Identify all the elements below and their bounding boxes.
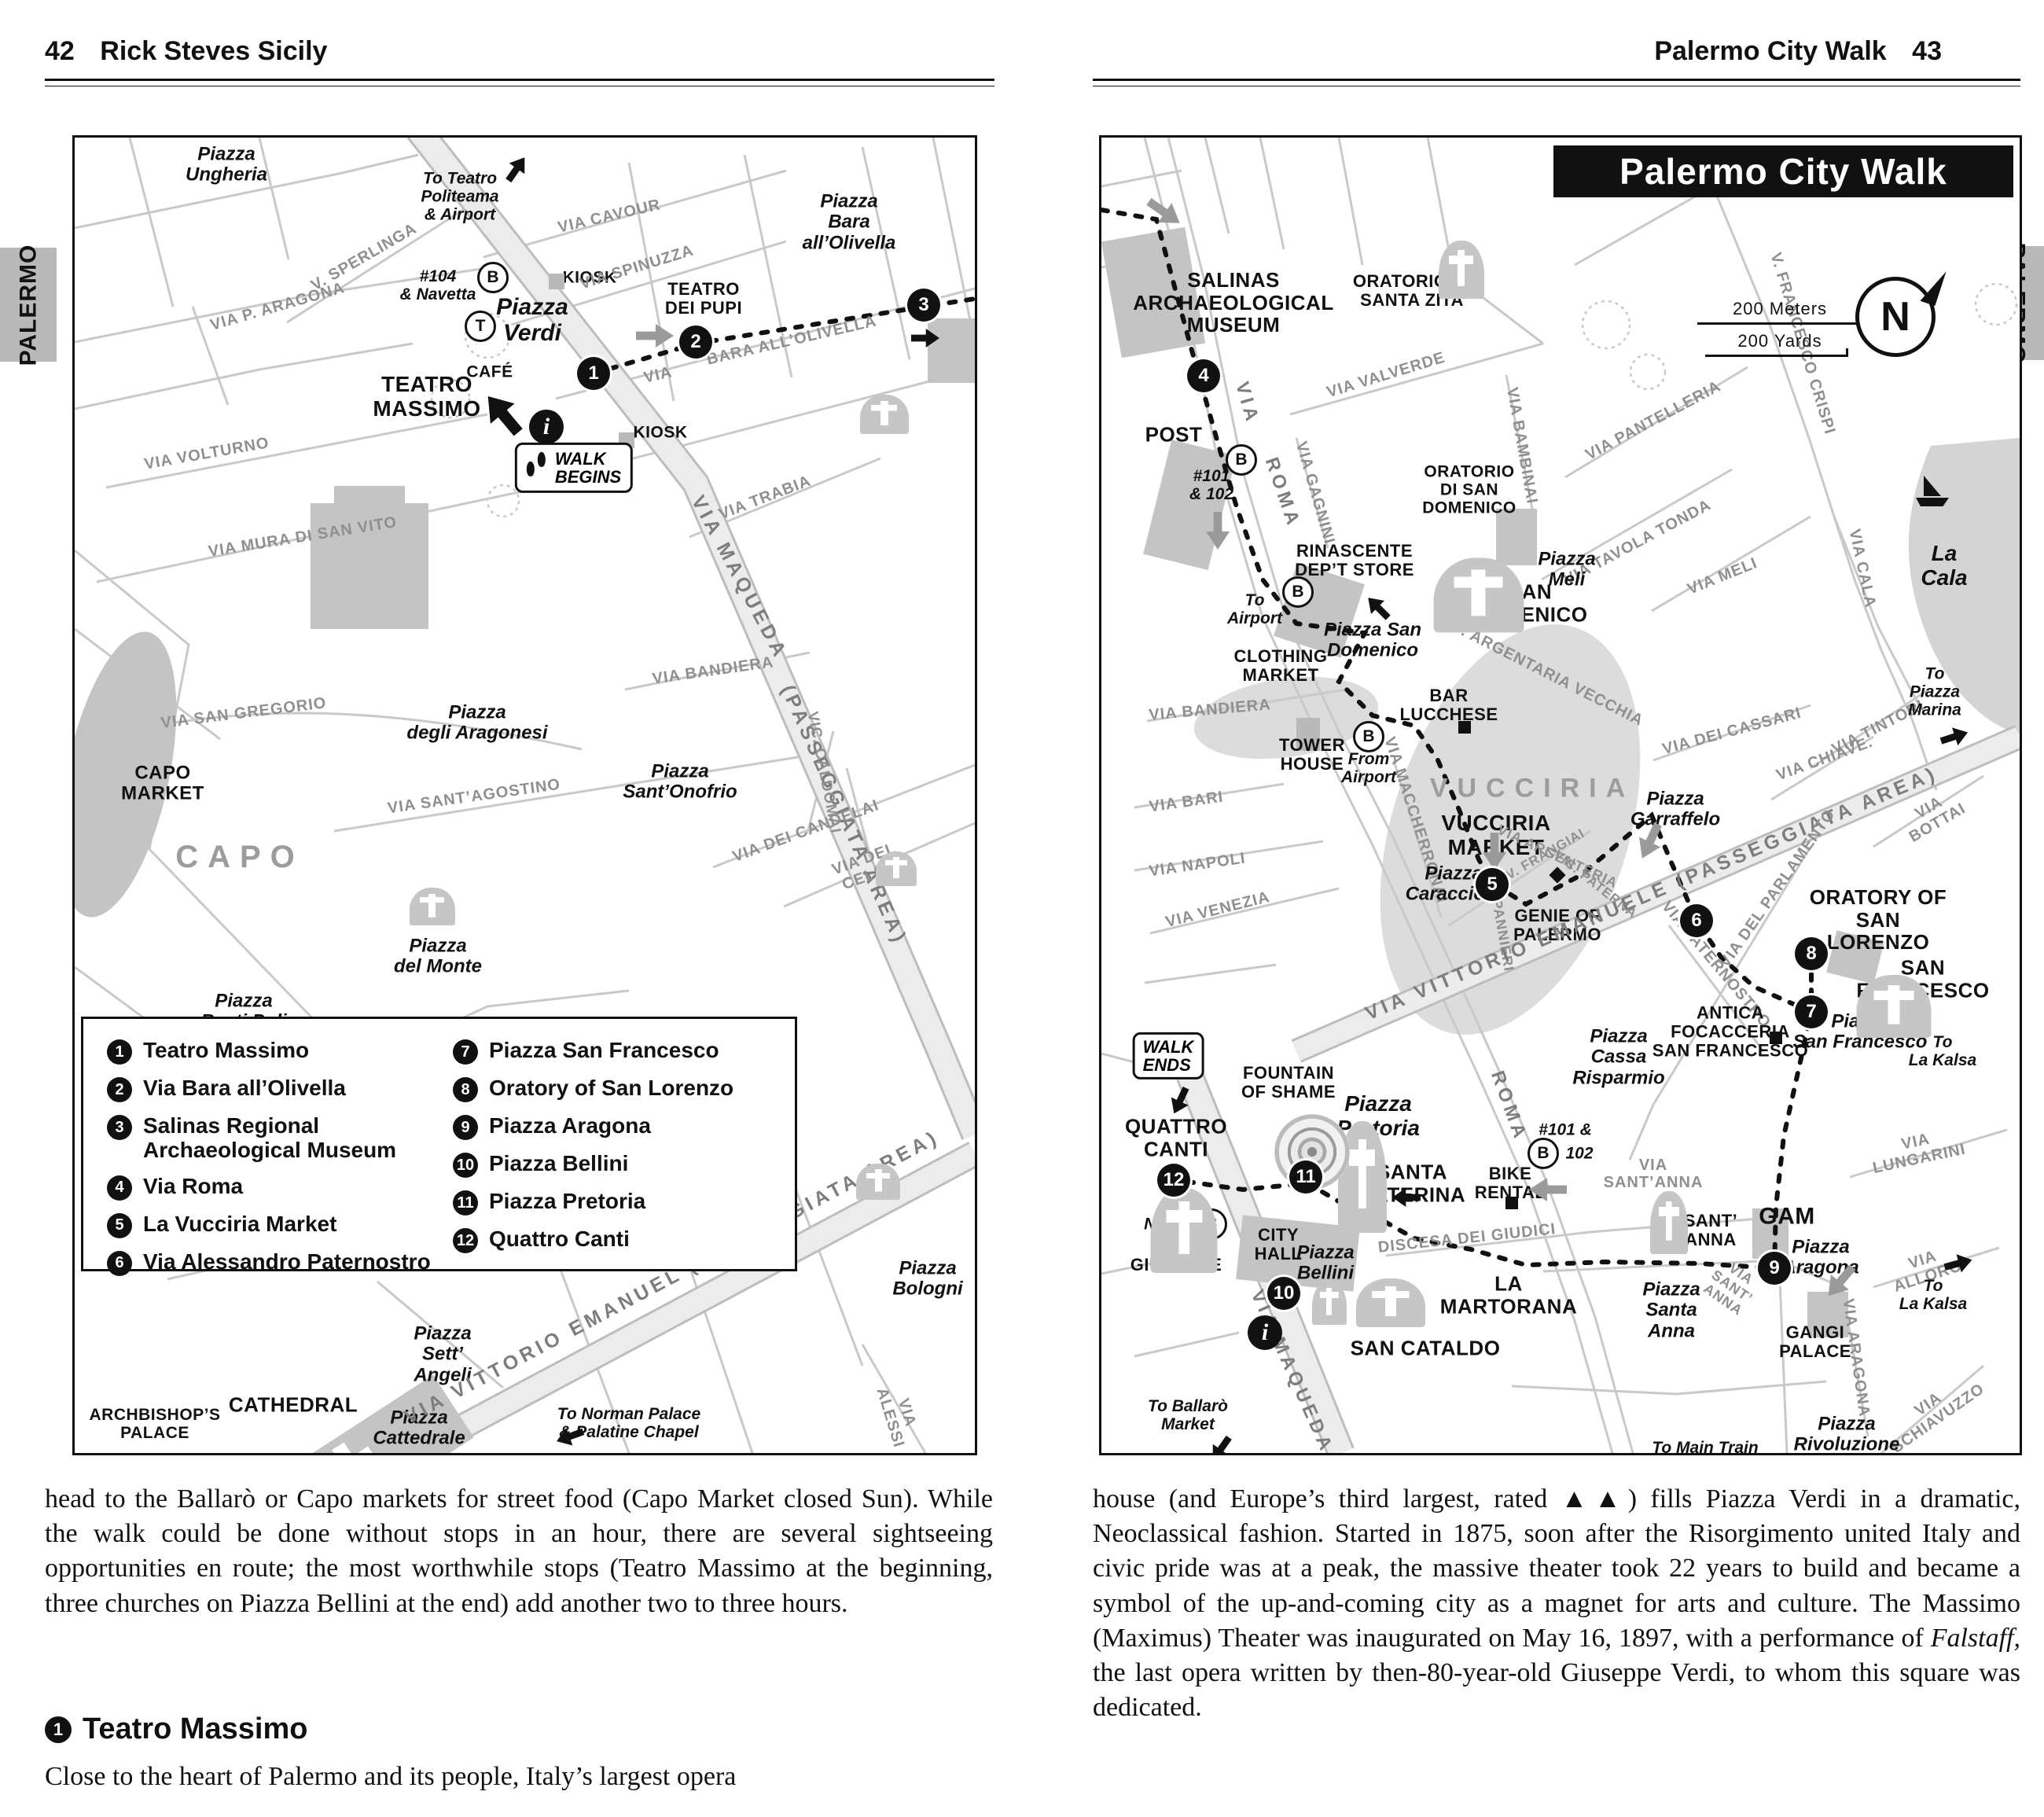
map-label: Piazza degli Aragonesi [406,703,547,745]
right-running-head: Palermo City Walk 43 [1654,36,1942,67]
church-icon [1312,1281,1347,1325]
overview-map[interactable]: Piazza UngheriaTo Teatro Politeama & Air… [72,135,977,1455]
map-label: QUATTRO CANTI [1125,1115,1227,1160]
page-number-right: 43 [1912,36,1942,66]
route-stop-2: 2 [679,326,712,359]
map-label: To Airport [1227,591,1282,627]
map-label: ANTICA FOCACCERIA SAN FRANCESCO [1652,1004,1808,1061]
church-icon [1434,558,1524,633]
heading-text: Teatro Massimo [83,1712,307,1746]
map-label: La Cala [1921,542,1967,590]
church-icon [1650,1191,1688,1254]
map-label: VUCCIRIA [1430,774,1634,803]
left-running-head: 42 Rick Steves Sicily [45,36,327,67]
chapter-title: Palermo City Walk [1654,36,1886,66]
kiosk-icon [549,274,564,289]
map-label: Piazza Cassa Risparmio [1572,1026,1664,1088]
boat-icon [1916,476,1950,510]
bike-rental-marker [1505,1197,1518,1209]
side-tab-left-label: PALERMO [15,244,42,366]
walk-begins-sign: WALK BEGINS [515,443,633,493]
route-stop-8: 8 [1795,937,1828,970]
map-label: Piazza Sant’Onofrio [623,762,737,804]
church-icon [1356,1278,1425,1327]
legend-item[interactable]: 8Oratory of San Lorenzo [453,1076,733,1102]
church-icon [1151,1188,1218,1273]
page-number-left: 42 [45,36,75,66]
map-label: To Ballarò Market [1148,1397,1228,1433]
walk-ends-sign: WALK ENDS [1133,1032,1204,1080]
left-page-paragraph: head to the Ballarò or Capo markets for … [45,1482,993,1621]
map-label: SANT’ ANNA [1684,1212,1738,1249]
church-icon [856,1164,900,1200]
right-page-paragraph: house (and Europe’s third largest, rated… [1093,1482,2020,1725]
map-label: Piazza San Domenico [1324,620,1421,662]
stop-number-icon: 2 [107,1077,132,1102]
compass-north-letter: N [1880,293,1910,340]
map-label: CATHEDRAL [229,1394,358,1417]
left-page-line: Close to the heart of Palermo and its pe… [45,1760,993,1794]
stop-number-icon: 7 [453,1039,478,1065]
book-title: Rick Steves Sicily [100,36,327,66]
scale-meters-line [1697,322,1858,325]
city-walk-map[interactable]: Palermo City Walk N 200 Meters 200 Yards… [1099,135,2022,1455]
map-label: To Piazza Marina [1908,664,1961,719]
stop-number-icon: 6 [107,1251,132,1276]
stop-number-icon: 9 [453,1115,478,1140]
map-title-text: Palermo City Walk [1619,150,1947,193]
map-label: CAPO [175,840,304,874]
map-label: GANGI PALACE [1779,1323,1851,1361]
legend-label: Salinas Regional Archaeological Museum [143,1113,396,1163]
legend-label: Via Alessandro Paternostro [143,1249,431,1274]
north-compass-icon: N [1855,277,1936,357]
legend-label: Piazza San Francesco [489,1038,719,1062]
bus-badge: B [1527,1138,1559,1169]
stop-number-icon: 11 [453,1190,478,1216]
teatro-massimo-heading: 1 Teatro Massimo [45,1712,307,1746]
map-label: Piazza Garraffelo [1630,789,1720,831]
legend-label: La Vucciria Market [143,1212,336,1236]
tram-badge: T [465,311,496,342]
route-stop-12: 12 [1157,1164,1190,1197]
map-title: Palermo City Walk [1553,145,2013,197]
stop-number-icon: 10 [453,1153,478,1178]
info-icon: i [1248,1315,1282,1350]
header-rule-left [45,79,994,86]
map-label: TEATRO DEI PUPI [665,280,742,318]
church-icon [1857,975,1932,1038]
church-icon [1439,241,1484,299]
stop-number-icon: 12 [453,1228,478,1253]
paragraph-part: the last opera written by then-80-year-o… [1093,1658,2020,1722]
stop-number-icon: 4 [107,1175,132,1201]
legend-label: Piazza Bellini [489,1151,628,1175]
legend-column-left: 1Teatro Massimo 2Via Bara all’Olivella 3… [107,1038,431,1276]
map-label: #101 & 102 [1189,467,1233,503]
route-stop-7: 7 [1795,995,1828,1028]
map-label: ARCHBISHOP’S PALACE [89,1406,220,1442]
walk-ends-label: WALK ENDS [1143,1038,1194,1074]
map-label: #101 & [1539,1120,1592,1138]
map-label: Piazza Verdi [496,294,568,346]
walk-begins-label: WALK BEGINS [555,450,621,486]
map-label: LA MARTORANA [1440,1272,1577,1317]
map-label: TOWER HOUSE [1279,736,1345,774]
legend-item[interactable]: 3Salinas Regional Archaeological Museum [107,1113,431,1163]
map-label: SAN CATALDO [1351,1337,1501,1360]
legend-item[interactable]: 7Piazza San Francesco [453,1038,733,1065]
legend-label: Via Roma [143,1174,243,1198]
bus-badge: B [1282,576,1314,608]
scale-yards-label: 200 Yards [1697,331,1862,351]
legend-item[interactable]: 1Teatro Massimo [107,1038,431,1065]
route-stop-9: 9 [1758,1252,1791,1285]
legend-label: Teatro Massimo [143,1038,309,1062]
stop-number-icon: 5 [107,1213,132,1238]
bus-badge: B [1353,721,1384,752]
map-label: CAPO MARKET [121,763,204,805]
route-stop-10: 10 [1267,1277,1300,1310]
legend-item[interactable]: 5La Vucciria Market [107,1212,431,1238]
legend-label: Piazza Pretoria [489,1189,645,1213]
stop-number-icon: 1 [107,1039,132,1065]
map-label: ORATORY OF SAN LORENZO [1807,886,1949,954]
map-label: BAR LUCCHESE [1399,686,1498,724]
footprints-icon [527,452,547,484]
map-label: VIA SANT’ANNA [1604,1157,1704,1191]
map-label: To Main Train Station [1652,1439,1758,1455]
map-label: 102 [1565,1144,1593,1162]
map-label: CLOTHING MARKET [1234,647,1328,685]
map-label: Piazza Santa Anna [1642,1279,1700,1341]
route-stop-4: 4 [1187,359,1220,392]
map-label: Piazza Bara all’Olivella [786,191,912,253]
map-label: Piazza Bellini [1296,1243,1354,1285]
map-label: To Teatro Politeama & Airport [421,169,498,223]
map-label: POST [1145,424,1203,447]
scale-bar: 200 Meters 200 Yards [1697,299,1862,357]
scale-yards-line [1705,355,1848,357]
legend-item[interactable]: 6Via Alessandro Paternostro [107,1249,431,1276]
stop-number-icon: 3 [107,1115,132,1140]
route-stop-6: 6 [1680,904,1713,937]
stop-number-icon: 8 [453,1077,478,1102]
map-label: SALINAS ARCHAEOLOGICAL MUSEUM [1133,269,1333,337]
map-label: GAM [1759,1204,1815,1230]
stop-number-icon: 1 [45,1716,72,1743]
bus-badge: B [1226,444,1257,476]
map-label: ORATORIO DI SAN DOMENICO [1422,462,1516,517]
map-label: Piazza Rivoluzione [1794,1414,1900,1455]
map-label: RINASCENTE DEP’T STORE [1295,542,1414,579]
to-station-arrow [1644,1455,1667,1455]
legend-item[interactable]: 10Piazza Bellini [453,1151,733,1178]
map-label: Piazza Bologni [892,1259,962,1300]
map-label: Piazza Ungheria [186,145,267,186]
legend-item[interactable]: 9Piazza Aragona [453,1113,733,1140]
route-stop-5: 5 [1476,868,1509,901]
church-icon [860,395,909,434]
side-tab-left: PALERMO [0,248,57,362]
map-legend: 1Teatro Massimo 2Via Bara all’Olivella 3… [81,1017,797,1271]
map-label: FOUNTAIN OF SHAME [1241,1064,1336,1102]
legend-item[interactable]: 4Via Roma [107,1174,431,1201]
paragraph-part: house (and Europe’s third largest, rated… [1093,1484,2020,1653]
book-spread: 42 Rick Steves Sicily Palermo City Walk … [0,0,2044,1817]
map-label: To La Kalsa [1909,1033,1976,1069]
bar-lucchese-marker [1458,721,1471,734]
legend-item[interactable]: 11Piazza Pretoria [453,1189,733,1216]
info-icon: i [529,410,564,444]
map-label: CITY HALL [1255,1226,1303,1263]
bus-badge: B [477,262,509,293]
route-stop-3: 3 [907,289,940,322]
map-label: To La Kalsa [1899,1277,1967,1313]
map-label: TEATRO MASSIMO [373,373,480,421]
legend-label: Quattro Canti [489,1227,630,1251]
map-label: Piazza del Monte [394,936,482,978]
header-rule-right [1093,79,2020,86]
map-label: KIOSK [633,423,687,441]
legend-label: Oratory of San Lorenzo [489,1076,733,1100]
church-icon [876,851,917,886]
map-label: #104 & Navetta [400,267,476,303]
legend-item[interactable]: 12Quattro Canti [453,1227,733,1253]
falstaff-italic: Falstaff, [1931,1624,2020,1653]
legend-label: Piazza Aragona [489,1113,651,1138]
legend-column-right: 7Piazza San Francesco 8Oratory of San Lo… [453,1038,733,1253]
route-stop-11: 11 [1289,1160,1322,1194]
scale-meters-label: 200 Meters [1697,299,1862,319]
church-icon [410,888,455,925]
legend-label: Via Bara all’Olivella [143,1076,346,1100]
focacceria-marker [1770,1032,1782,1044]
legend-item[interactable]: 2Via Bara all’Olivella [107,1076,431,1102]
route-stop-1: 1 [577,357,610,390]
